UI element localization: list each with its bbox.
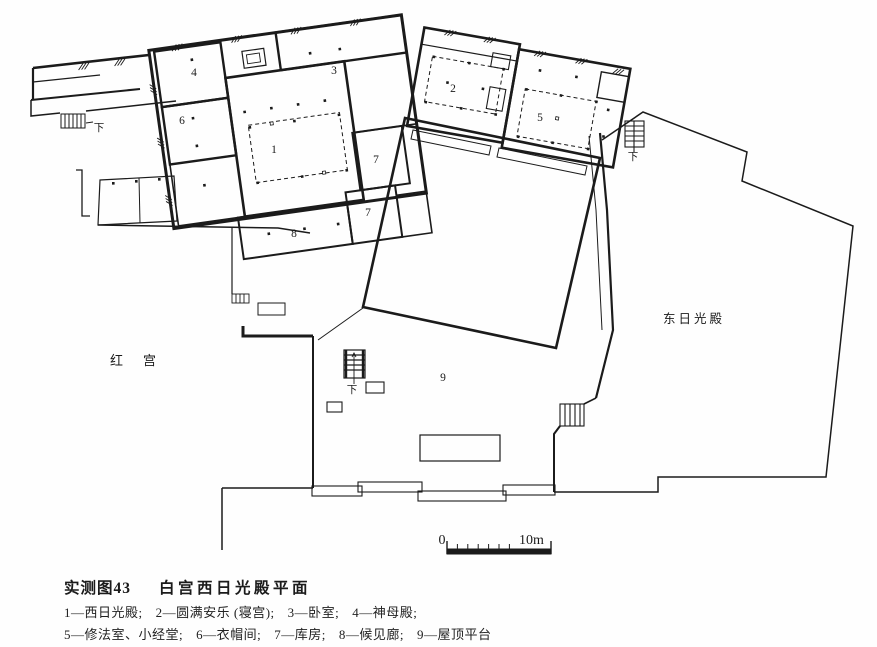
stair-central xyxy=(344,350,365,384)
figure-number: 实测图43 xyxy=(64,580,131,597)
legend-row-2: 5—修法室、小经堂;6—衣帽间;7—库房;8—候见廊;9—屋顶平台 xyxy=(64,624,505,643)
roof-terrace xyxy=(222,294,555,550)
room-label-7a: 7 xyxy=(373,154,379,166)
area-label-east-hall: 东日光殿 xyxy=(663,312,725,326)
room-2-5-wing xyxy=(406,25,631,167)
room-label-6: 6 xyxy=(179,115,185,127)
stair-down-label-central: 下 xyxy=(347,385,358,396)
stair-down-label-west: 下 xyxy=(94,123,105,134)
east-terrace xyxy=(554,112,853,492)
stair-northeast xyxy=(625,121,644,152)
scale-zero-label: 0 xyxy=(439,533,446,548)
figure-caption: 实测图43白宫西日光殿平面 xyxy=(64,576,311,598)
legend-item-9: 9—屋顶平台 xyxy=(417,627,492,642)
floor-plan-drawing: 1 2 3 4 5 6 7 7 8 9 下 下 下 红宫 东日光殿 0 10m xyxy=(0,0,877,647)
west-wing xyxy=(145,13,432,269)
room-label-8: 8 xyxy=(291,228,297,240)
scale-10m-label: 10m xyxy=(519,533,544,548)
legend-item-7: 7—库房; xyxy=(274,627,326,642)
legend-item-4: 4—神母殿; xyxy=(352,605,417,620)
legend-item-8: 8—候见廊; xyxy=(339,627,404,642)
central-hall xyxy=(363,118,600,348)
book-page: 1 2 3 4 5 6 7 7 8 9 下 下 下 红宫 东日光殿 0 10m … xyxy=(0,0,877,647)
room-label-3: 3 xyxy=(331,65,337,77)
legend-item-6: 6—衣帽间; xyxy=(196,627,261,642)
room-label-7b: 7 xyxy=(365,207,371,219)
stair-east xyxy=(560,404,584,426)
room-label-2: 2 xyxy=(450,83,456,95)
legend-item-2: 2—圆满安乐 (寝宫); xyxy=(156,605,275,620)
legend-item-3: 3—卧室; xyxy=(288,605,340,620)
stair-west xyxy=(61,114,93,128)
figure-title: 白宫西日光殿平面 xyxy=(159,580,311,597)
area-label-red-palace: 红宫 xyxy=(110,353,176,368)
red-palace-area xyxy=(76,170,310,294)
room-label-5: 5 xyxy=(537,112,543,124)
legend-item-5: 5—修法室、小经堂; xyxy=(64,627,183,642)
room-label-1: 1 xyxy=(271,144,277,156)
legend-item-1: 1—西日光殿; xyxy=(64,605,143,620)
room-label-4: 4 xyxy=(191,67,197,79)
room-label-9: 9 xyxy=(440,372,446,384)
stair-down-label-northeast: 下 xyxy=(628,152,639,163)
legend-row-1: 1—西日光殿;2—圆满安乐 (寝宫);3—卧室;4—神母殿; xyxy=(64,602,430,621)
